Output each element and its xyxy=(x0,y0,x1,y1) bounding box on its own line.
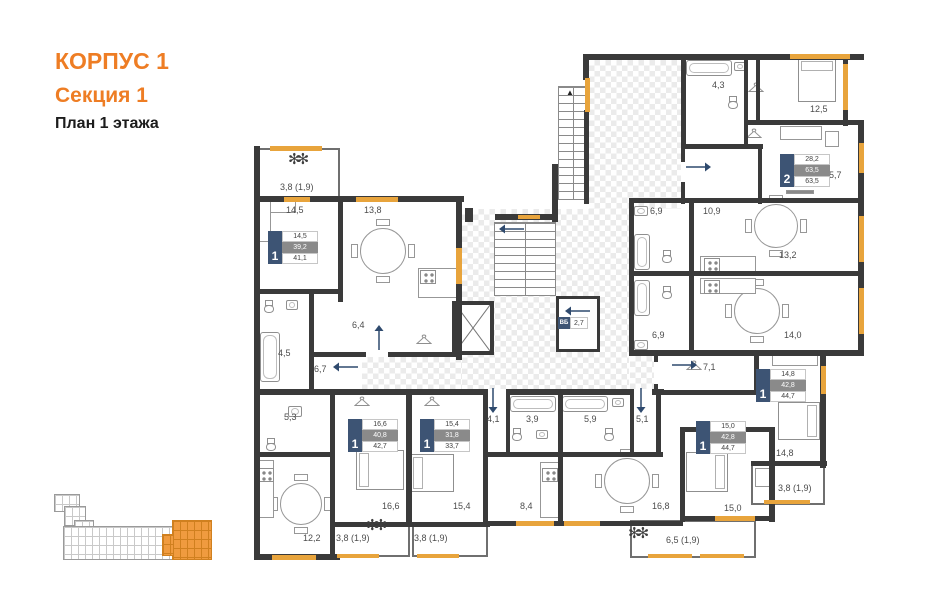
window xyxy=(337,554,379,558)
entry-arrow-icon xyxy=(498,224,526,236)
chair-icon xyxy=(800,219,807,233)
stove-icon xyxy=(704,258,720,272)
chair-icon xyxy=(782,304,789,318)
entry-arrow-icon xyxy=(670,358,698,370)
living-area: 15,4 xyxy=(434,419,470,430)
room-label-balcony-b: 3,8 (1,9) xyxy=(336,533,370,543)
apartment-rooms-count: 2 xyxy=(780,154,794,187)
room-label-bedroom-b: 16,6 xyxy=(382,501,400,511)
wall xyxy=(483,452,663,457)
wall xyxy=(751,461,827,466)
window xyxy=(843,64,848,110)
apartment-badge-c[interactable]: 1 15,4 31,8 33,7 xyxy=(420,419,470,452)
window xyxy=(516,521,554,526)
net-area: 63,5 xyxy=(794,165,830,176)
room-label-bedroom-f: 12,5 xyxy=(810,104,828,114)
wall xyxy=(656,392,661,456)
dining-table-icon xyxy=(734,288,780,334)
chair-icon xyxy=(294,474,308,481)
wall xyxy=(629,198,864,203)
bathtub-icon xyxy=(634,234,650,270)
toilet-icon xyxy=(266,438,276,451)
chair-icon xyxy=(408,244,415,258)
sink-icon xyxy=(612,398,624,407)
chair-icon xyxy=(725,304,732,318)
total-area: 42,7 xyxy=(362,441,398,452)
dining-table-icon xyxy=(604,458,650,504)
total-area: 44,7 xyxy=(770,391,806,402)
apartment-areas: 14,5 39,2 41,1 xyxy=(282,231,318,264)
wall xyxy=(254,289,342,294)
room-label-bath-d: 5,9 xyxy=(584,414,597,424)
plant-icon: ✻✻ xyxy=(628,524,645,542)
apartment-badge-b[interactable]: 1 16,6 40,8 42,7 xyxy=(348,419,398,452)
apartment-rooms-count: 1 xyxy=(420,419,434,452)
window xyxy=(790,54,850,59)
hanger-icon xyxy=(416,332,432,350)
minimap-current-section[interactable] xyxy=(172,520,212,560)
minimap-current-section[interactable] xyxy=(162,534,174,556)
corridor-floor xyxy=(630,356,656,389)
room-label-kitchen-c: 8,4 xyxy=(520,501,533,511)
wall xyxy=(629,271,864,276)
sink-icon xyxy=(634,206,648,216)
minimap[interactable] xyxy=(40,492,225,582)
apartment-badge-a[interactable]: 1 14,5 39,2 41,1 xyxy=(268,231,318,264)
living-area: 14,8 xyxy=(770,369,806,380)
apartment-badge-f[interactable]: 2 28,2 63,5 63,5 xyxy=(780,154,830,187)
hanger-icon xyxy=(424,394,440,412)
bathtub-icon xyxy=(260,332,280,382)
wall xyxy=(254,452,334,457)
stove-icon xyxy=(258,468,274,482)
wall xyxy=(680,427,685,522)
wall xyxy=(629,202,634,354)
page-title-section: Секция 1 xyxy=(55,84,148,108)
hanger-icon xyxy=(354,394,370,412)
living-area: 15,0 xyxy=(710,421,746,432)
stove-icon xyxy=(704,280,720,294)
bed-icon xyxy=(798,58,836,102)
room-label-kitchen-b: 12,2 xyxy=(303,533,321,543)
toilet-icon xyxy=(512,428,522,441)
living-area: 28,2 xyxy=(794,154,830,165)
bed-icon xyxy=(778,402,820,440)
wall xyxy=(629,350,864,356)
dining-table-icon xyxy=(754,204,798,248)
room-label-bath-b: 5,3 xyxy=(284,412,297,422)
wall xyxy=(630,392,634,454)
bed-icon xyxy=(410,454,454,492)
room-label-kitchen-f: 13,2 xyxy=(779,250,797,260)
page-title-building: КОРПУС 1 xyxy=(55,48,169,75)
sink-icon xyxy=(536,430,548,439)
wall xyxy=(309,289,314,393)
entry-arrow-icon xyxy=(684,160,712,172)
chair-icon xyxy=(750,336,764,343)
room-label-hall-b: 6,7 xyxy=(314,364,327,374)
sink-icon xyxy=(286,300,298,310)
room-label-hall-f: 10,9 xyxy=(703,206,721,216)
apartment-badge-e[interactable]: 1 14,8 42,8 44,7 xyxy=(756,369,806,402)
room-label-kitchen-d: 16,8 xyxy=(652,501,670,511)
wall xyxy=(506,392,510,454)
window xyxy=(564,521,600,526)
stair-up-arrow: ▲ xyxy=(566,88,574,97)
window xyxy=(648,554,692,558)
apartment-areas: 15,0 42,8 44,7 xyxy=(710,421,746,454)
toilet-icon xyxy=(264,300,274,313)
net-area: 42,8 xyxy=(710,432,746,443)
living-area: 14,5 xyxy=(282,231,318,242)
total-area: 44,7 xyxy=(710,443,746,454)
stair-rail xyxy=(573,87,574,199)
window xyxy=(715,516,755,521)
wall xyxy=(756,56,760,124)
window xyxy=(284,197,310,202)
furniture-icon xyxy=(780,126,822,140)
stove-icon xyxy=(420,270,436,284)
vent-block-code: ВБ xyxy=(558,317,570,329)
window xyxy=(417,554,459,558)
pillow xyxy=(807,405,817,437)
chair-icon xyxy=(376,276,390,283)
chair-icon xyxy=(745,219,752,233)
room-label-balcony-c: 3,8 (1,9) xyxy=(414,533,448,543)
chair-icon xyxy=(620,506,634,513)
window xyxy=(700,554,744,558)
window xyxy=(585,78,590,112)
hanger-icon xyxy=(746,126,762,144)
wall xyxy=(748,120,864,125)
sink-icon xyxy=(634,340,648,350)
toilet-icon xyxy=(604,428,614,441)
tv-icon xyxy=(786,190,814,194)
stove-icon xyxy=(542,468,558,482)
room-label-kitchen-a: 13,8 xyxy=(364,205,382,215)
corridor-floor xyxy=(589,60,681,209)
bathtub-icon xyxy=(510,396,556,412)
bathtub-icon xyxy=(562,396,608,412)
minimap-building xyxy=(63,526,175,560)
entry-arrow-icon xyxy=(372,324,384,352)
corridor-floor xyxy=(362,357,462,389)
entry-arrow-icon xyxy=(332,362,360,374)
bathtub-icon xyxy=(634,280,650,316)
wall xyxy=(254,146,260,560)
wall xyxy=(338,198,343,302)
wall xyxy=(330,522,490,527)
pillow xyxy=(801,61,833,71)
total-area: 41,1 xyxy=(282,253,318,264)
room-label-bedroom-d: 15,0 xyxy=(724,503,742,513)
wall xyxy=(683,144,763,149)
plant-icon: ✻✻ xyxy=(366,516,383,534)
apartment-areas: 16,6 40,8 42,7 xyxy=(362,419,398,452)
chair-icon xyxy=(351,244,358,258)
wall xyxy=(465,208,473,222)
page-title-floor: План 1 этажа xyxy=(55,115,159,133)
wall xyxy=(769,427,775,522)
vent-block-badge: ВБ 2,7 xyxy=(558,317,588,329)
apartment-rooms-count: 1 xyxy=(696,421,710,454)
window xyxy=(270,146,322,151)
toilet-icon xyxy=(728,96,738,109)
bed-icon xyxy=(356,450,404,490)
door-opening xyxy=(366,352,388,357)
room-label-bath-f2: 6,9 xyxy=(650,206,663,216)
room-label-bath-e: 6,9 xyxy=(652,330,665,340)
apartment-areas: 15,4 31,8 33,7 xyxy=(434,419,470,452)
wall xyxy=(689,202,694,354)
room-label-bath-a: 4,5 xyxy=(278,348,291,358)
room-label-hall-e: 7,1 xyxy=(703,362,716,372)
furniture-icon xyxy=(825,131,839,147)
room-label-hall-a: 6,4 xyxy=(352,320,365,330)
toilet-icon xyxy=(662,250,672,263)
bathtub-icon xyxy=(686,60,732,76)
total-area: 63,5 xyxy=(794,176,830,187)
entry-arrow-icon xyxy=(488,386,500,414)
pillow xyxy=(359,453,369,487)
plant-icon: ✻✻ xyxy=(288,150,305,168)
room-label-bath-f1: 4,3 xyxy=(712,80,725,90)
wall xyxy=(330,392,335,557)
wall xyxy=(744,56,748,148)
room-label-balcony-a: 3,8 (1,9) xyxy=(280,182,314,192)
net-area: 31,8 xyxy=(434,430,470,441)
apartment-badge-d[interactable]: 1 15,0 42,8 44,7 xyxy=(696,421,746,454)
chair-icon xyxy=(376,219,390,226)
pillow xyxy=(715,455,725,489)
wall xyxy=(583,54,589,80)
room-label-balcony-e: 3,8 (1,9) xyxy=(778,483,812,493)
room-label-balcony-d: 6,5 (1,9) xyxy=(666,535,700,545)
room-label-bath-c: 3,9 xyxy=(526,414,539,424)
entry-arrow-icon xyxy=(636,386,648,414)
room-label-room-a: 14,5 xyxy=(286,205,304,215)
window xyxy=(859,143,864,173)
window xyxy=(456,248,462,284)
pillow xyxy=(413,457,423,489)
window xyxy=(356,197,398,202)
wall xyxy=(584,110,589,204)
apartment-rooms-count: 1 xyxy=(348,419,362,452)
wall xyxy=(558,392,563,524)
dining-table-icon xyxy=(360,228,406,274)
wall xyxy=(681,56,686,148)
chair-icon xyxy=(652,474,659,488)
wall xyxy=(406,392,412,527)
window xyxy=(518,215,540,219)
room-label-bedroom-e: 14,8 xyxy=(776,448,794,458)
room-label-bedroom-c: 15,4 xyxy=(453,501,471,511)
chair-icon xyxy=(595,474,602,488)
vent-block-area: 2,7 xyxy=(570,317,588,329)
net-area: 42,8 xyxy=(770,380,806,391)
net-area: 39,2 xyxy=(282,242,318,253)
door-opening xyxy=(654,362,658,384)
bed-icon xyxy=(686,452,728,492)
window xyxy=(764,500,810,504)
apartment-areas: 14,8 42,8 44,7 xyxy=(770,369,806,402)
wall xyxy=(758,146,762,204)
room-label-kitchen-e: 14,0 xyxy=(784,330,802,340)
wall xyxy=(656,390,762,395)
living-area: 16,6 xyxy=(362,419,398,430)
net-area: 40,8 xyxy=(362,430,398,441)
window xyxy=(272,555,316,560)
window xyxy=(859,216,864,262)
apartment-rooms-count: 1 xyxy=(268,231,282,264)
floorplan-page: КОРПУС 1 Секция 1 План 1 этажа ▲✻✻✻✻✻✻ 3… xyxy=(0,0,941,600)
window xyxy=(821,366,826,394)
wall xyxy=(254,389,468,395)
total-area: 33,7 xyxy=(434,441,470,452)
room-label-hall-d: 5,1 xyxy=(636,414,649,424)
apartment-rooms-count: 1 xyxy=(756,369,770,402)
dining-table-icon xyxy=(280,483,322,525)
toilet-icon xyxy=(662,286,672,299)
window xyxy=(859,288,864,334)
apartment-areas: 28,2 63,5 63,5 xyxy=(794,154,830,187)
room-label-hall-c: 4,1 xyxy=(487,414,500,424)
